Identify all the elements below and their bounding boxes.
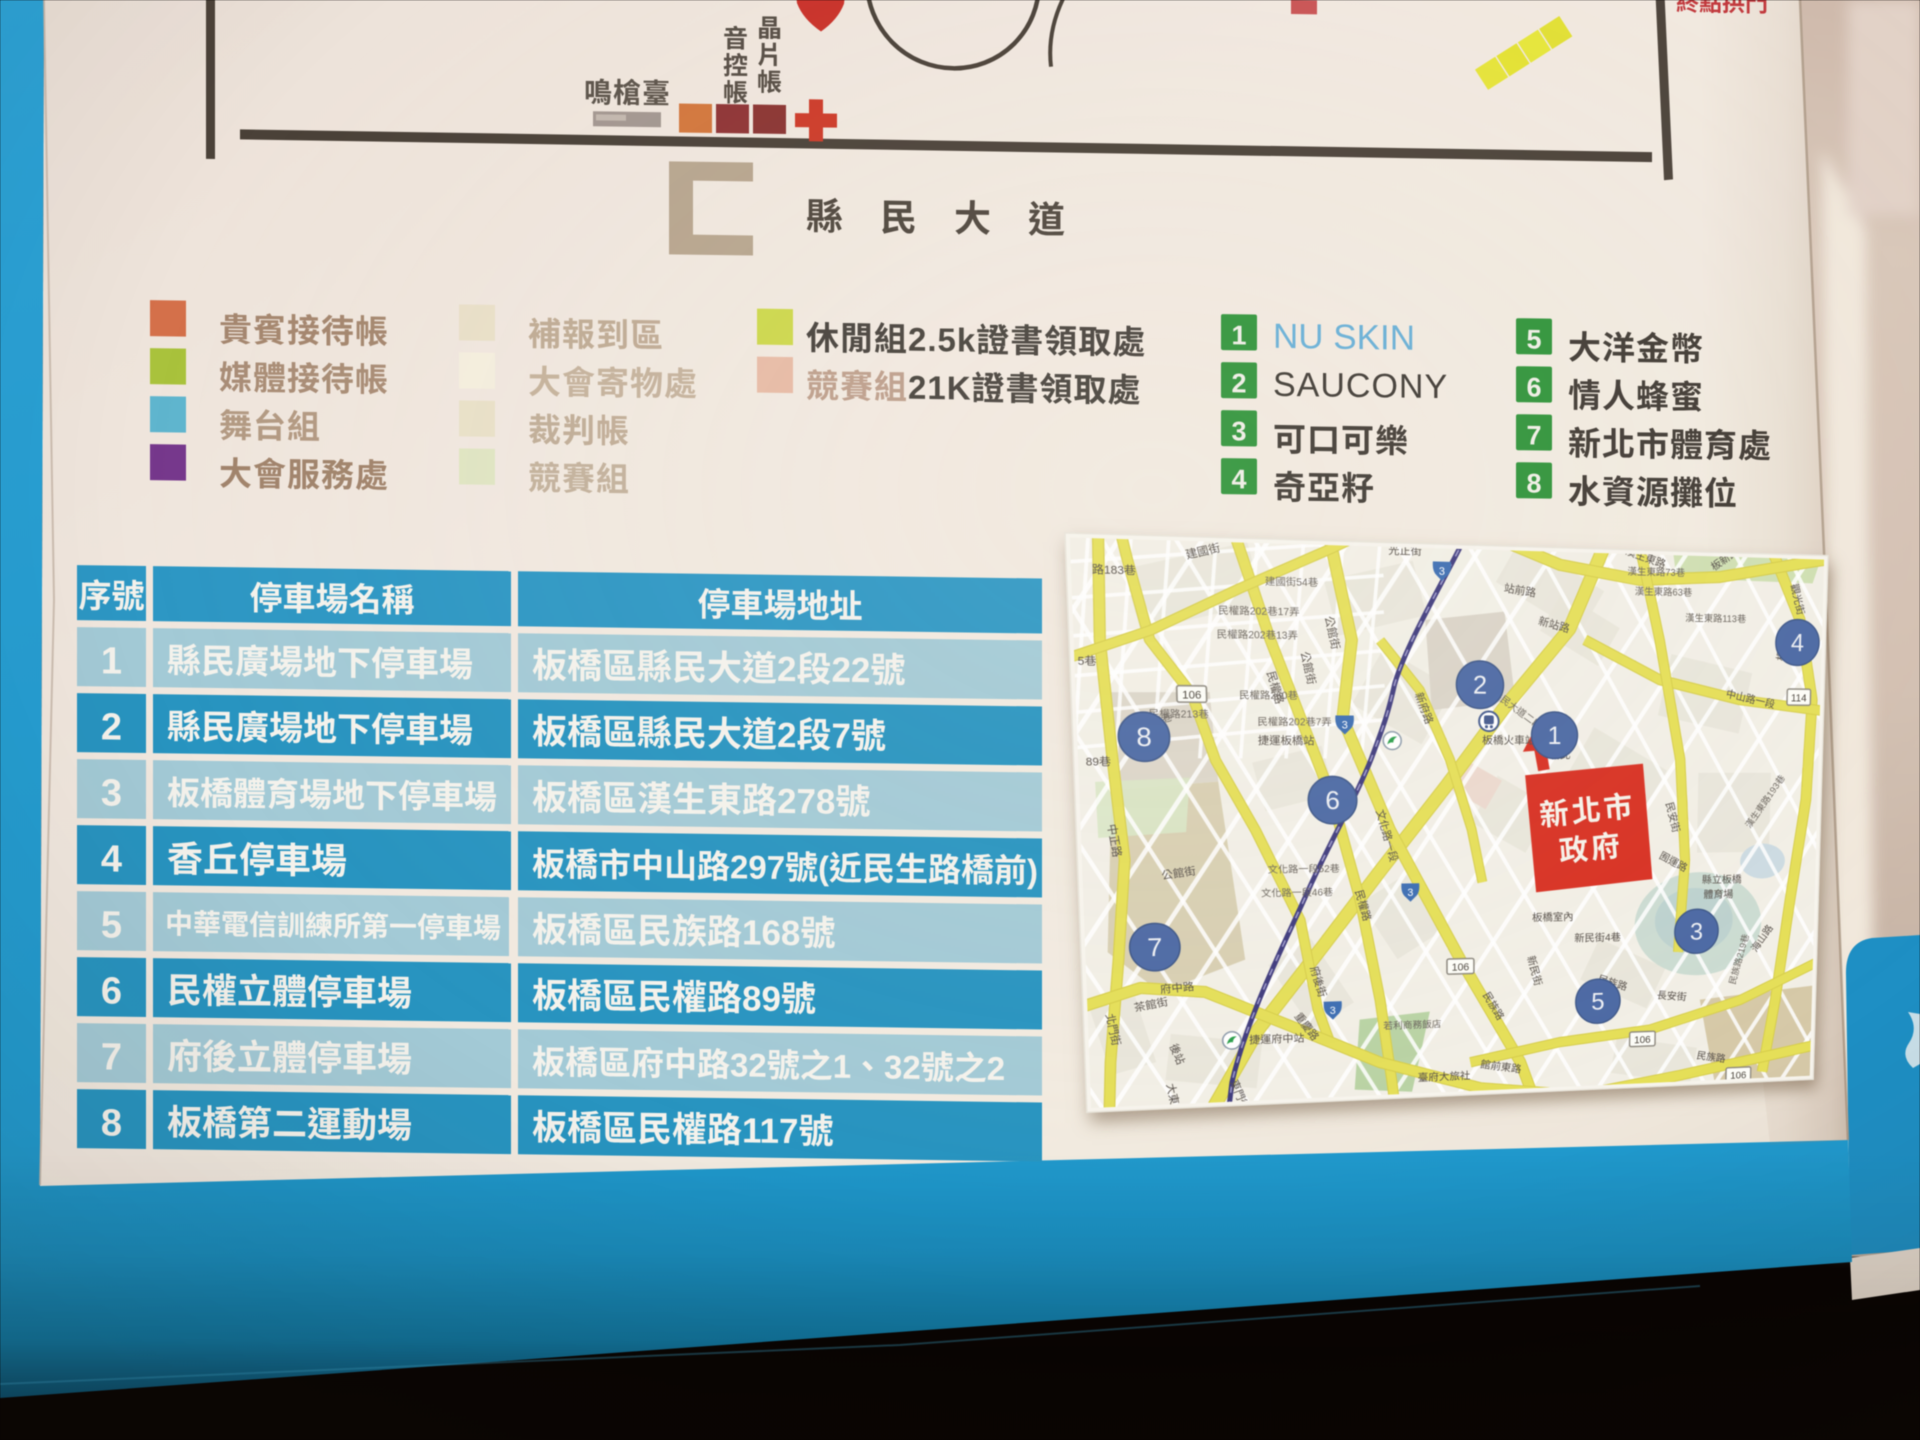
svg-text:長安街: 長安街 [1656, 987, 1687, 1004]
svg-text:114: 114 [1791, 692, 1807, 704]
svg-text:2: 2 [1473, 670, 1487, 699]
svg-text:4: 4 [1791, 629, 1805, 657]
svg-text:1: 1 [1548, 721, 1562, 749]
svg-text:新民街4巷: 新民街4巷 [1574, 929, 1621, 945]
svg-text:臺府大旅社: 臺府大旅社 [1418, 1067, 1471, 1084]
svg-text:帳: 帳 [723, 73, 748, 109]
svg-text:5: 5 [1591, 988, 1605, 1015]
svg-text:106: 106 [1182, 688, 1202, 701]
svg-text:帳: 帳 [757, 63, 782, 99]
svg-text:3: 3 [1330, 1004, 1336, 1016]
svg-text:106: 106 [1452, 961, 1470, 973]
svg-text:106: 106 [1634, 1034, 1651, 1046]
svg-text:體育場: 體育場 [1703, 886, 1733, 901]
svg-text:若利商務飯店: 若利商務飯店 [1383, 1017, 1441, 1032]
svg-text:民權路202巷13弄: 民權路202巷13弄 [1216, 626, 1298, 642]
svg-text:89巷: 89巷 [1085, 753, 1111, 769]
svg-text:捷運府中站: 捷運府中站 [1249, 1030, 1305, 1047]
svg-text:8: 8 [1136, 722, 1152, 752]
svg-text:路183巷: 路183巷 [1092, 560, 1137, 578]
svg-text:府中路: 府中路 [1159, 978, 1195, 997]
svg-text:5巷: 5巷 [1077, 652, 1096, 669]
svg-text:縣民大道: 縣民大道 [806, 186, 1102, 244]
svg-text:3: 3 [1439, 565, 1445, 578]
svg-text:終點拱門: 終點拱門 [1676, 0, 1768, 19]
svg-text:板橋火車站: 板橋火車站 [1482, 732, 1535, 748]
svg-text:漢生東路113巷: 漢生東路113巷 [1685, 611, 1746, 626]
svg-text:3: 3 [1407, 886, 1413, 898]
svg-text:民權路202巷7弄: 民權路202巷7弄 [1257, 714, 1331, 729]
svg-text:3: 3 [1690, 918, 1704, 945]
svg-text:板橋室內: 板橋室內 [1532, 908, 1573, 924]
svg-text:捷運板橋站: 捷運板橋站 [1258, 732, 1315, 748]
svg-text:6: 6 [1325, 786, 1340, 815]
svg-text:政府: 政府 [1557, 821, 1624, 870]
svg-text:民權路202巷17弄: 民權路202巷17弄 [1218, 603, 1300, 619]
svg-text:文化路一段46巷: 文化路一段46巷 [1261, 885, 1333, 900]
svg-text:縣立板橋: 縣立板橋 [1702, 871, 1742, 886]
svg-text:3: 3 [1342, 718, 1348, 731]
svg-text:7: 7 [1147, 933, 1163, 962]
svg-text:漢生東路63巷: 漢生東路63巷 [1635, 584, 1693, 599]
svg-text:建國街54巷: 建國街54巷 [1265, 574, 1318, 590]
svg-text:漢生東路73巷: 漢生東路73巷 [1627, 564, 1685, 579]
svg-text:鳴槍臺: 鳴槍臺 [584, 71, 671, 112]
svg-text:文化路一段52巷: 文化路一段52巷 [1268, 861, 1340, 876]
